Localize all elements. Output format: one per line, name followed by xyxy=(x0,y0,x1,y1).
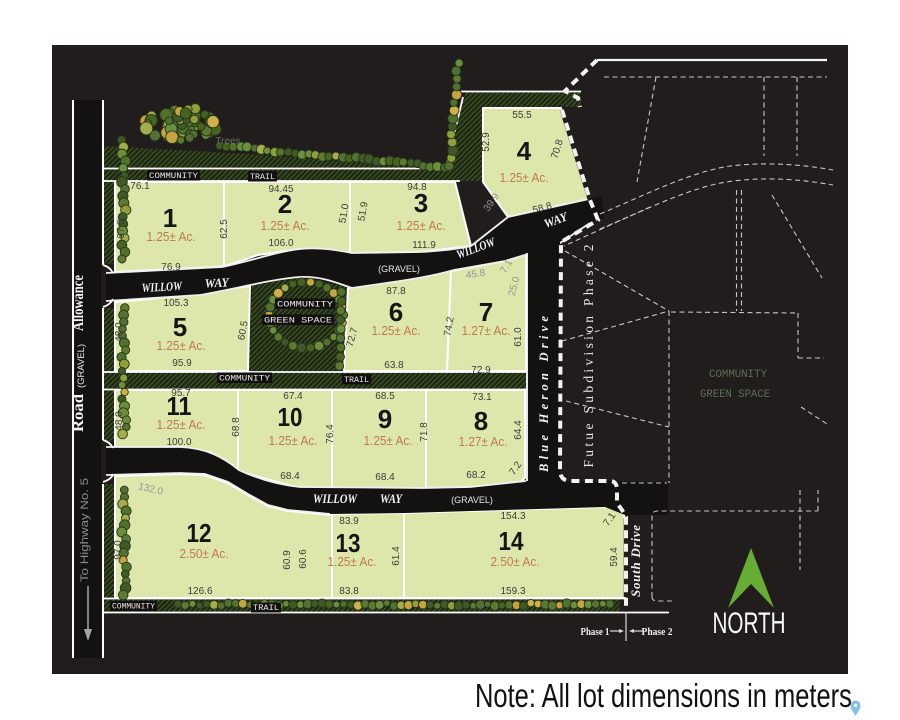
svg-text:TRAIL: TRAIL xyxy=(253,603,279,613)
svg-text:72.9: 72.9 xyxy=(471,365,491,376)
svg-text:67.0: 67.0 xyxy=(116,219,127,239)
svg-text:COMMUNITY: COMMUNITY xyxy=(219,374,270,384)
svg-text:59.4: 59.4 xyxy=(609,547,620,567)
svg-text:TRAIL: TRAIL xyxy=(250,172,275,182)
svg-text:52.9: 52.9 xyxy=(481,132,492,152)
svg-text:Road: Road xyxy=(70,394,87,432)
svg-text:71.8: 71.8 xyxy=(419,422,430,442)
svg-text:10: 10 xyxy=(278,402,303,432)
svg-text:67.4: 67.4 xyxy=(283,391,303,402)
svg-text:95.7: 95.7 xyxy=(171,388,191,399)
svg-text:83.9: 83.9 xyxy=(339,516,359,527)
svg-text:60.6: 60.6 xyxy=(298,549,309,569)
svg-text:NORTH: NORTH xyxy=(713,607,786,640)
svg-text:To Highway No. 5: To Highway No. 5 xyxy=(79,478,91,582)
svg-text:(GRAVEL): (GRAVEL) xyxy=(378,264,420,274)
svg-text:48.0: 48.0 xyxy=(114,322,125,342)
svg-text:94.45: 94.45 xyxy=(268,184,293,195)
svg-text:126.6: 126.6 xyxy=(187,586,212,597)
svg-text:Trees: Trees xyxy=(215,136,240,147)
svg-text:60.9: 60.9 xyxy=(282,550,293,570)
svg-text:1.25± Ac.: 1.25± Ac. xyxy=(328,554,377,569)
svg-text:2.50± Ac.: 2.50± Ac. xyxy=(491,554,540,569)
svg-text:COMMUNITY: COMMUNITY xyxy=(112,602,155,612)
svg-text:106.0: 106.0 xyxy=(268,238,293,249)
svg-text:2.50± Ac.: 2.50± Ac. xyxy=(180,546,229,561)
svg-text:(GRAVEL): (GRAVEL) xyxy=(451,495,493,505)
svg-text:South Drive: South Drive xyxy=(628,525,643,597)
svg-text:111.9: 111.9 xyxy=(412,240,436,251)
svg-text:1.27± Ac.: 1.27± Ac. xyxy=(462,323,511,338)
svg-text:8: 8 xyxy=(474,406,488,436)
svg-text:COMMUNITY: COMMUNITY xyxy=(149,171,198,181)
svg-text:154.3: 154.3 xyxy=(500,511,525,522)
svg-text:COMMUNITY: COMMUNITY xyxy=(277,300,333,310)
svg-text:68.5: 68.5 xyxy=(375,391,395,402)
svg-text:63.8: 63.8 xyxy=(384,360,404,371)
svg-text:Note: All lot dimensions in me: Note: All lot dimensions in meters. xyxy=(475,677,859,714)
svg-text:12: 12 xyxy=(187,518,212,548)
svg-text:Phase 2: Phase 2 xyxy=(642,627,673,638)
svg-text:WILLOW: WILLOW xyxy=(141,279,182,295)
svg-text:1.25± Ac.: 1.25± Ac. xyxy=(397,218,446,233)
svg-text:76.9: 76.9 xyxy=(161,262,181,273)
svg-text:87.8: 87.8 xyxy=(386,286,406,297)
svg-text:159.3: 159.3 xyxy=(500,586,525,597)
svg-text:4: 4 xyxy=(517,136,532,166)
svg-text:9: 9 xyxy=(378,404,392,434)
svg-text:Allowance: Allowance xyxy=(70,275,87,331)
svg-text:68.8: 68.8 xyxy=(231,417,242,437)
svg-text:68.4: 68.4 xyxy=(280,471,300,482)
svg-text:95.9: 95.9 xyxy=(172,358,192,369)
svg-text:1.25± Ac.: 1.25± Ac. xyxy=(269,433,318,448)
svg-text:48.0: 48.0 xyxy=(114,411,125,431)
svg-text:1.25± Ac.: 1.25± Ac. xyxy=(372,323,421,338)
svg-text:100.0: 100.0 xyxy=(166,437,191,448)
svg-text:WAY: WAY xyxy=(204,275,230,290)
svg-text:14: 14 xyxy=(499,526,524,556)
svg-text:64.4: 64.4 xyxy=(513,420,524,440)
svg-text:61.0: 61.0 xyxy=(513,327,524,347)
svg-text:76.1: 76.1 xyxy=(130,181,150,192)
svg-text:GREEN SPACE: GREEN SPACE xyxy=(700,389,770,401)
svg-text:68.4: 68.4 xyxy=(375,472,395,483)
svg-text:55.5: 55.5 xyxy=(512,110,532,121)
svg-text:97.0: 97.0 xyxy=(113,540,124,560)
svg-text:1.25± Ac.: 1.25± Ac. xyxy=(261,218,310,233)
svg-text:(GRAVEL): (GRAVEL) xyxy=(76,344,87,388)
svg-text:1.25± Ac.: 1.25± Ac. xyxy=(500,170,549,185)
svg-text:61.4: 61.4 xyxy=(391,546,402,566)
svg-text:GREEN SPACE: GREEN SPACE xyxy=(264,316,332,326)
svg-text:73.1: 73.1 xyxy=(472,392,492,403)
svg-text:1.25± Ac.: 1.25± Ac. xyxy=(147,229,196,244)
svg-text:83.8: 83.8 xyxy=(339,586,359,597)
svg-text:WILLOW: WILLOW xyxy=(313,491,358,506)
svg-text:62.5: 62.5 xyxy=(219,219,230,239)
svg-text:1.25± Ac.: 1.25± Ac. xyxy=(157,417,206,432)
svg-text:105.3: 105.3 xyxy=(163,298,188,309)
svg-text:TRAIL: TRAIL xyxy=(344,375,369,385)
svg-text:Phase 1: Phase 1 xyxy=(581,627,610,638)
svg-text:1.25± Ac.: 1.25± Ac. xyxy=(364,433,413,448)
svg-text:68.2: 68.2 xyxy=(466,470,486,481)
svg-text:1.25± Ac.: 1.25± Ac. xyxy=(157,338,206,353)
svg-text:COMMUNITY: COMMUNITY xyxy=(709,369,767,381)
svg-text:76.4: 76.4 xyxy=(325,424,336,444)
svg-text:94.8: 94.8 xyxy=(407,182,427,193)
svg-text:1.27± Ac.: 1.27± Ac. xyxy=(459,434,508,449)
svg-text:WAY: WAY xyxy=(380,491,403,506)
